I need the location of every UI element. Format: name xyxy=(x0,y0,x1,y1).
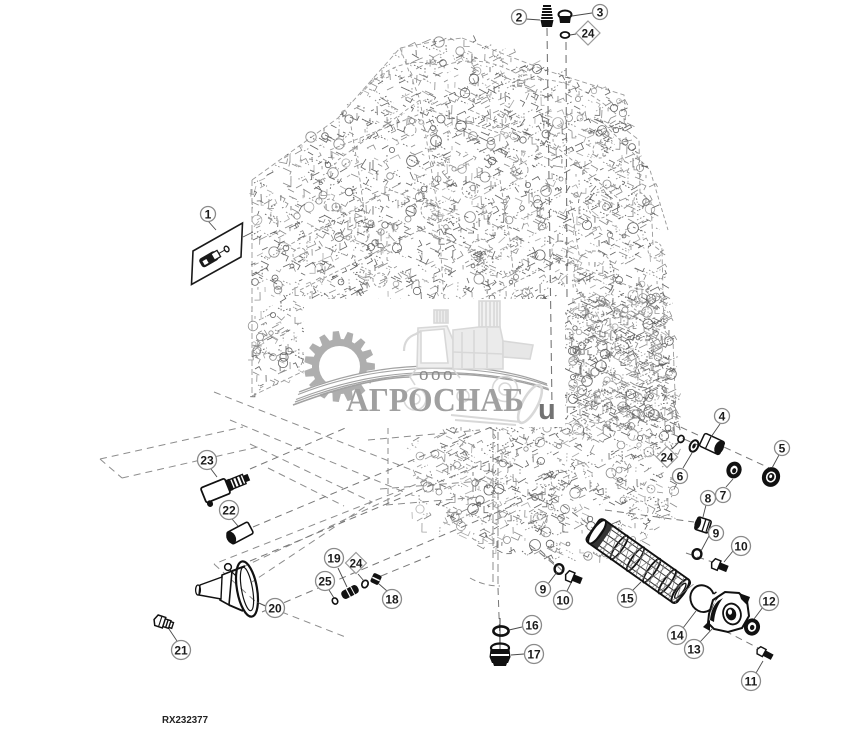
svg-text:АГРОСНАБ: АГРОСНАБ xyxy=(346,382,524,419)
svg-text:24: 24 xyxy=(350,558,363,570)
svg-text:21: 21 xyxy=(174,643,188,657)
svg-text:17: 17 xyxy=(527,647,541,661)
svg-text:24: 24 xyxy=(661,452,674,464)
svg-text:6: 6 xyxy=(677,469,684,483)
svg-text:18: 18 xyxy=(385,592,399,606)
svg-text:10: 10 xyxy=(556,593,570,607)
svg-text:7: 7 xyxy=(720,488,727,502)
svg-text:12: 12 xyxy=(762,594,776,608)
svg-text:24: 24 xyxy=(582,28,595,40)
svg-text:3: 3 xyxy=(597,5,604,19)
svg-text:9: 9 xyxy=(713,526,720,540)
svg-text:25: 25 xyxy=(318,574,332,588)
svg-text:22: 22 xyxy=(222,503,236,517)
svg-text:10: 10 xyxy=(734,539,748,553)
svg-text:13: 13 xyxy=(687,642,701,656)
svg-text:20: 20 xyxy=(268,601,282,615)
svg-text:15: 15 xyxy=(620,591,634,605)
svg-text:5: 5 xyxy=(779,441,786,455)
svg-text:9: 9 xyxy=(540,582,547,596)
svg-text:11: 11 xyxy=(745,674,758,688)
svg-text:14: 14 xyxy=(670,628,684,642)
svg-text:1: 1 xyxy=(205,207,212,221)
svg-text:19: 19 xyxy=(327,551,341,565)
svg-text:RX232377: RX232377 xyxy=(162,715,208,726)
svg-text:16: 16 xyxy=(525,618,539,632)
svg-text:23: 23 xyxy=(200,453,214,467)
svg-text:u: u xyxy=(538,394,556,426)
svg-text:2: 2 xyxy=(516,10,523,24)
svg-text:8: 8 xyxy=(705,491,712,505)
svg-text:4: 4 xyxy=(719,409,726,423)
